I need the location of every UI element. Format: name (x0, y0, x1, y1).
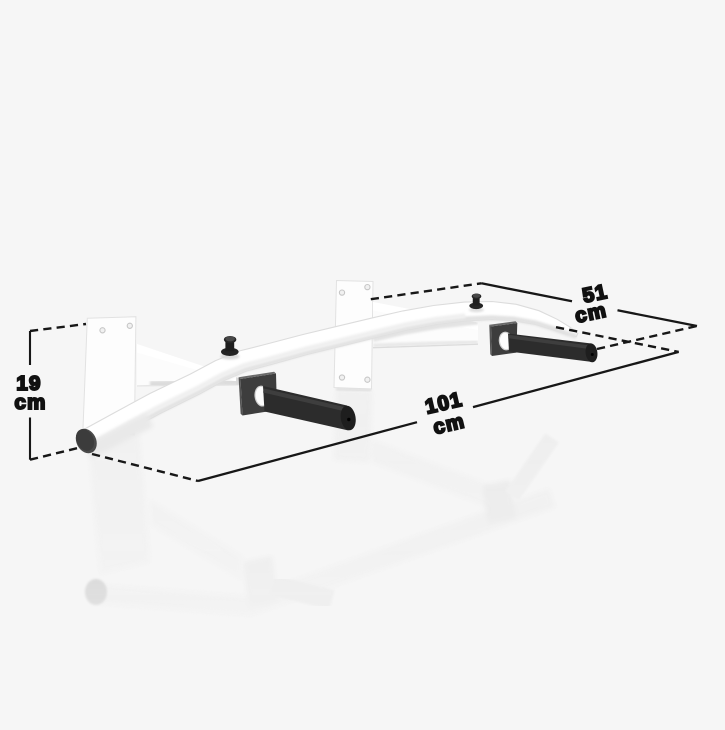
svg-text:cm: cm (14, 391, 46, 414)
